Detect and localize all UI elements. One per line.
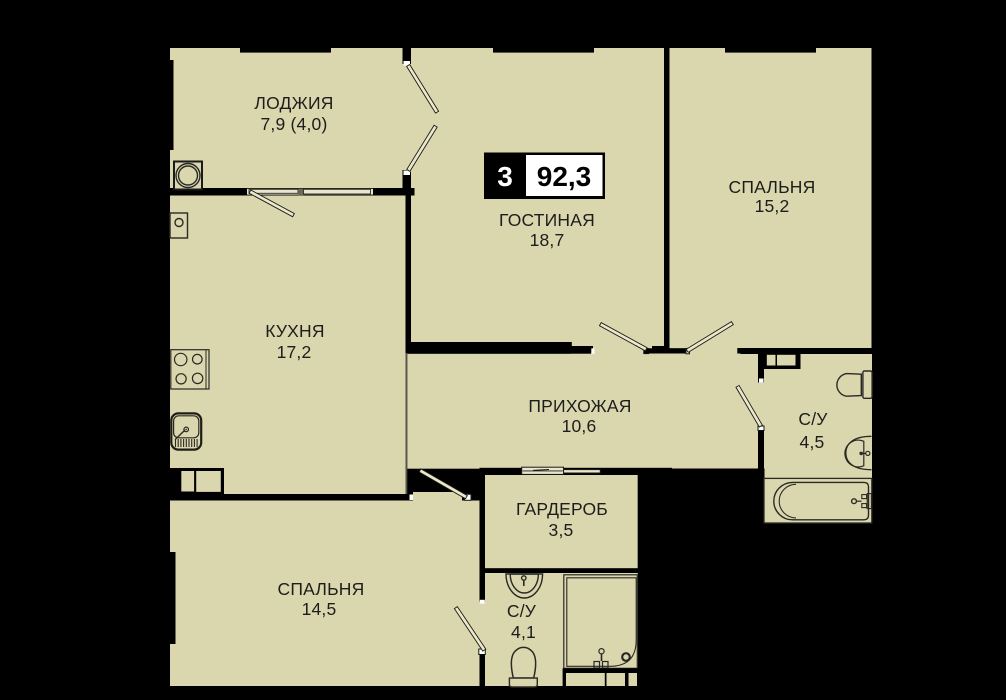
svg-text:ПРИХОЖАЯ: ПРИХОЖАЯ [528,396,631,416]
svg-text:ГОСТИНАЯ: ГОСТИНАЯ [499,210,595,230]
svg-text:С/У: С/У [507,601,537,621]
svg-text:ЛОДЖИЯ: ЛОДЖИЯ [254,93,333,113]
svg-text:92,3: 92,3 [537,161,592,192]
svg-text:18,7: 18,7 [530,230,565,250]
svg-text:15,2: 15,2 [755,196,790,216]
svg-text:14,5: 14,5 [302,599,337,619]
svg-text:10,6: 10,6 [562,416,597,436]
svg-text:КУХНЯ: КУХНЯ [265,321,324,341]
svg-text:17,2: 17,2 [277,342,312,362]
svg-text:ГАРДЕРОБ: ГАРДЕРОБ [516,499,608,519]
svg-text:4,5: 4,5 [800,432,825,452]
svg-text:4,1: 4,1 [511,622,536,642]
svg-text:СПАЛЬНЯ: СПАЛЬНЯ [278,579,365,599]
svg-text:3,5: 3,5 [549,520,574,540]
svg-text:7,9 (4,0): 7,9 (4,0) [261,114,328,134]
svg-text:3: 3 [497,161,513,192]
svg-text:СПАЛЬНЯ: СПАЛЬНЯ [729,177,816,197]
svg-text:С/У: С/У [798,409,828,429]
